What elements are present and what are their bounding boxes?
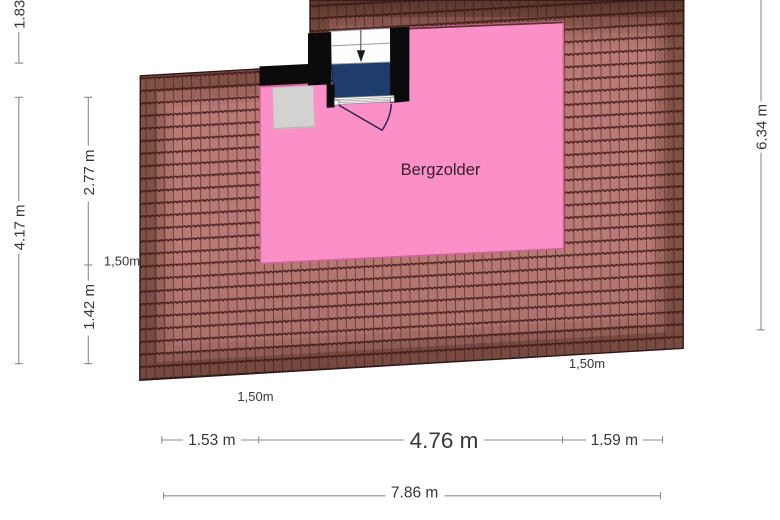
svg-text:7.86 m: 7.86 m — [391, 485, 438, 502]
svg-text:4.76 m: 4.76 m — [410, 428, 479, 453]
svg-text:1,50m: 1,50m — [104, 254, 140, 269]
svg-text:1.59 m: 1.59 m — [591, 432, 638, 449]
svg-text:1,50m: 1,50m — [569, 356, 605, 371]
svg-text:2.77 m: 2.77 m — [81, 149, 98, 195]
svg-text:1,50m: 1,50m — [237, 389, 273, 404]
svg-text:6.34 m: 6.34 m — [754, 104, 771, 150]
svg-text:1.83 m: 1.83 m — [11, 0, 28, 29]
svg-text:Bergzolder: Bergzolder — [401, 161, 481, 179]
svg-text:1.42 m: 1.42 m — [81, 284, 98, 330]
svg-text:4.17 m: 4.17 m — [11, 204, 28, 250]
svg-text:1.53 m: 1.53 m — [188, 432, 235, 449]
